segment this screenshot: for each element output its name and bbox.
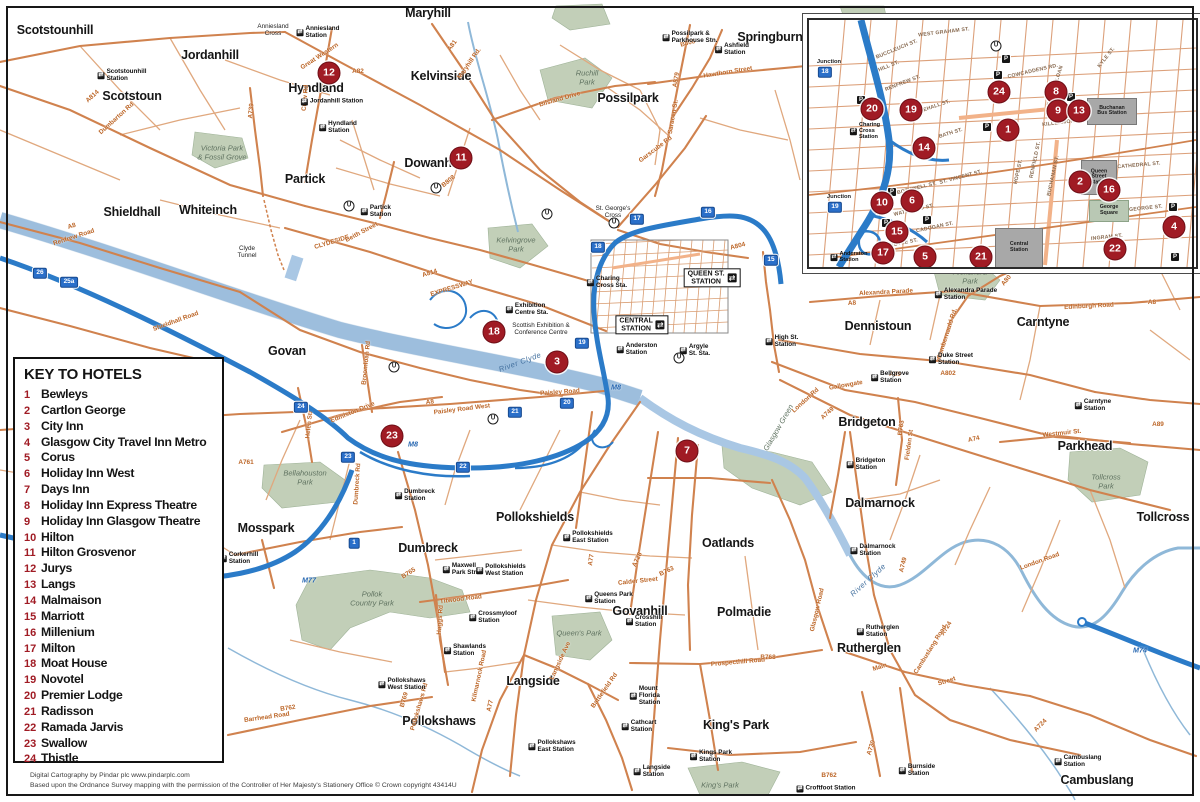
building-label: George Square — [1090, 205, 1128, 217]
underground-icon: U — [431, 183, 442, 194]
station-label: ⇄Exhibition Centre Sta. — [506, 303, 548, 317]
station-name: Bellgrove Station — [880, 371, 909, 385]
area-label: Hyndland — [288, 81, 343, 95]
hotel-marker: 4 — [1163, 216, 1186, 239]
legend-item: 2Cartlon George — [24, 403, 216, 419]
hotel-marker: 13 — [1068, 100, 1091, 123]
rail-icon: ⇄ — [319, 125, 326, 132]
legend-item: 16Millenium — [24, 625, 216, 641]
station-name: Crosshill Station — [635, 615, 662, 629]
underground-icon: U — [389, 362, 400, 373]
station-name: Carntyne Station — [1084, 399, 1111, 413]
hotel-name: Cartlon George — [41, 403, 126, 417]
parking-icon: P — [1169, 203, 1177, 211]
copyright-notice: Digital Cartography by Pindar plc www.pi… — [30, 771, 457, 791]
hotel-number: 10 — [24, 532, 41, 544]
rail-icon: ⇄ — [796, 786, 803, 793]
hotel-number: 3 — [24, 421, 41, 433]
hotel-name: Marriott — [41, 609, 84, 623]
station-name: Dalmarnock Station — [859, 544, 895, 558]
hotel-name: Langs — [41, 577, 75, 591]
hotel-number: 18 — [24, 658, 41, 670]
hotel-marker: 3 — [546, 351, 569, 374]
park-label: Pollok Country Park — [350, 590, 394, 607]
road-label: A8 — [67, 223, 77, 232]
poi-label: Anniesland Cross — [257, 24, 288, 38]
city-centre-inset-map: Buchanan Bus StationQueen Street Station… — [807, 18, 1198, 269]
junction-sign: 16 — [701, 207, 715, 218]
road-label: A8 — [426, 399, 435, 406]
road-label: A739 — [248, 103, 256, 119]
hotel-number: 14 — [24, 595, 41, 607]
inset-street-label: BATH ST. — [938, 128, 963, 140]
station-name: Anniesland Station — [306, 26, 340, 40]
hotel-number: 5 — [24, 452, 41, 464]
station-name: Pollokshields West Station — [485, 564, 526, 578]
road-label: Hawthorn Street — [703, 66, 753, 80]
road-label: A879 — [673, 72, 682, 88]
hotel-marker: 20 — [861, 98, 884, 121]
area-label: Maryhill — [405, 6, 451, 20]
rail-icon: ⇄ — [563, 535, 570, 542]
rail-icon: ⇄ — [857, 629, 864, 636]
hotel-marker: 24 — [988, 81, 1011, 104]
hotel-marker: 2 — [1069, 171, 1092, 194]
station-label: ⇄Queens Park Station — [585, 592, 633, 606]
inset-street-label: CATHEDRAL ST. — [1117, 162, 1161, 171]
hotel-marker: 12 — [318, 62, 341, 85]
station-label: ⇄Charing Cross Station — [850, 123, 880, 141]
legend-item: 23Swallow — [24, 736, 216, 752]
road-label: Glasgow Road — [810, 588, 826, 633]
hotel-name: City Inn — [41, 419, 83, 433]
road-label: Saracen St. — [668, 99, 680, 134]
hotel-marker: 19 — [900, 99, 923, 122]
station-box: CENTRAL STATION⇄ — [615, 315, 668, 334]
station-box-name: CENTRAL STATION — [619, 317, 652, 332]
road-label: Paisley Road West — [433, 403, 490, 416]
station-name: Scotstounhill Station — [107, 69, 147, 83]
rail-icon: ⇄ — [626, 619, 633, 626]
road-label: Bilsland Drive — [539, 91, 582, 109]
area-label: Whiteinch — [179, 203, 237, 217]
rail-icon: ⇄ — [617, 347, 624, 354]
area-label: Partick — [285, 172, 325, 186]
hotel-number: 7 — [24, 484, 41, 496]
river-label: River Clyde — [848, 562, 887, 599]
rail-icon: ⇄ — [476, 568, 483, 575]
rail-icon: ⇄ — [378, 682, 385, 689]
rail-icon: ⇄ — [469, 615, 476, 622]
legend-item: 5Corus — [24, 450, 216, 466]
legend-item: 20Premier Lodge — [24, 688, 216, 704]
hotel-name: Bewleys — [41, 387, 88, 401]
legend-item: 13Langs — [24, 577, 216, 593]
station-label: ⇄Pollokshields West Station — [476, 564, 526, 578]
station-name: Partick Station — [370, 205, 391, 219]
station-label: ⇄Dumbreck Station — [395, 489, 435, 503]
junction-sign: 15 — [764, 255, 778, 266]
station-label: ⇄Rutherglen Station — [857, 625, 899, 639]
junction-sign: 21 — [508, 407, 522, 418]
station-label: ⇄Ashfield Station — [715, 43, 749, 57]
inset-street-label: ST. VINCENT ST. — [939, 170, 983, 186]
area-label: Dalmarnock — [845, 496, 915, 510]
junction-sign: 20 — [560, 398, 574, 409]
station-box-name: QUEEN ST. STATION — [688, 270, 725, 285]
legend-item: 17Milton — [24, 641, 216, 657]
building-label: Buchanan Bus Station — [1088, 106, 1136, 118]
road-label: Helen St. — [305, 411, 314, 439]
junction-sign: 22 — [456, 462, 470, 473]
road-label: B808 — [441, 175, 457, 190]
road-label: A749 — [820, 407, 836, 422]
station-name: Argyle St. Sta. — [689, 344, 710, 358]
hotel-marker: 15 — [886, 221, 909, 244]
station-building: Central Station — [995, 228, 1043, 268]
road-label: A80 — [1001, 274, 1013, 287]
copyright-line-1: Digital Cartography by Pindar plc www.pi… — [30, 771, 457, 781]
hotel-name: Malmaison — [41, 593, 101, 607]
area-label: Shieldhall — [103, 205, 160, 219]
park-label: Glasgow Green — [762, 403, 796, 452]
inset-street-label: WEST GRAHAM ST. — [918, 27, 970, 38]
station-name: Burnside Station — [908, 764, 935, 778]
motorway-label: M77 — [302, 576, 316, 585]
inset-street-label: GEORGE ST. — [1129, 205, 1163, 214]
station-label: ⇄Anderston Station — [617, 343, 658, 357]
underground-icon: U — [674, 353, 685, 364]
junction-sign: 19 — [575, 338, 589, 349]
station-box: QUEEN ST. STATION⇄ — [684, 268, 741, 287]
rail-icon: ⇄ — [1075, 403, 1082, 410]
station-label: ⇄Maxwell Park Stn. — [443, 563, 479, 577]
hotel-number: 6 — [24, 468, 41, 480]
hotel-number: 9 — [24, 516, 41, 528]
station-name: High St. Station — [775, 335, 799, 349]
hotel-marker: 18 — [483, 321, 506, 344]
hotel-name: Days Inn — [41, 482, 89, 496]
legend-item: 11Hilton Grosvenor — [24, 545, 216, 561]
station-name: Dumbreck Station — [404, 489, 435, 503]
park-label: Queen's Park — [556, 630, 601, 639]
station-name: Charing Cross Sta. — [596, 276, 627, 290]
area-label: Bridgeton — [838, 415, 895, 429]
station-label: ⇄High St. Station — [766, 335, 799, 349]
rail-icon: ⇄ — [528, 744, 535, 751]
road-label: Titwood Road — [440, 594, 483, 605]
road-label: EXPRESSWAY — [430, 279, 474, 298]
park-label: Tollcross Park — [1091, 473, 1120, 490]
station-label: ⇄Charing Cross Sta. — [587, 276, 627, 290]
rail-icon: ⇄ — [847, 462, 854, 469]
rail-icon: ⇄ — [929, 357, 936, 364]
road-label: Langside Ave — [549, 641, 572, 681]
park-label: Kelvingrove Park — [496, 236, 535, 253]
station-name: Anderston Station — [626, 343, 658, 357]
station-name: Cambuslang Station — [1064, 755, 1102, 769]
park-label: Victoria Park & Fossil Grove — [197, 144, 246, 161]
rail-icon: ⇄ — [506, 307, 513, 314]
road-label: A74 — [968, 436, 981, 445]
hotel-number: 13 — [24, 579, 41, 591]
area-label: Oatlands — [702, 536, 754, 550]
road-label: A89 — [1152, 422, 1164, 428]
road-label: A8 — [848, 301, 856, 308]
legend-item: 12Jurys — [24, 561, 216, 577]
station-label: ⇄Dalmarnock Station — [850, 544, 895, 558]
road-label: Gallowgate — [829, 380, 864, 392]
hotel-number: 24 — [24, 753, 41, 765]
inset-street-label: RENFIELD ST. — [1030, 141, 1043, 179]
underground-icon: U — [991, 41, 1002, 52]
hotel-number: 8 — [24, 500, 41, 512]
hotel-marker: 14 — [913, 137, 936, 160]
junction-sign: 18 — [818, 67, 832, 78]
road-label: A814 — [422, 269, 438, 280]
road-label: A82 — [352, 69, 364, 75]
rail-icon: ⇄ — [690, 754, 697, 761]
rail-icon: ⇄ — [728, 274, 737, 283]
hotel-marker: 16 — [1098, 179, 1121, 202]
copyright-line-2: Based upon the Ordnance Survey mapping w… — [30, 781, 457, 791]
inset-street-label: RENFREW ST. — [885, 75, 922, 93]
inset-street-label: BUCHANAN ST. — [1047, 155, 1061, 196]
hotel-marker: 10 — [871, 192, 894, 215]
station-label: ⇄Croftfoot Station — [796, 786, 855, 793]
rail-icon: ⇄ — [871, 375, 878, 382]
building-label: Central Station — [996, 242, 1042, 254]
rail-icon: ⇄ — [1055, 759, 1062, 766]
station-label: ⇄Bellgrove Station — [871, 371, 909, 385]
inset-labels-layer: Buchanan Bus StationQueen Street Station… — [809, 20, 1196, 267]
road-label: A728 — [632, 552, 644, 569]
junction-caption: Junction — [827, 194, 851, 200]
junction-sign: 24 — [294, 402, 308, 413]
motorway-label: M8 — [408, 440, 418, 449]
station-label: ⇄Alexandra Parade Station — [935, 288, 997, 302]
station-label: ⇄Anderston Station — [831, 252, 868, 264]
hotel-name: Holiday Inn Express Theatre — [41, 498, 197, 512]
station-label: ⇄Jordanhill Station — [301, 99, 363, 106]
road-label: Broomloan Rd — [362, 341, 373, 385]
road-label: Edmiston Drive — [330, 401, 376, 425]
road-label: A802 — [940, 371, 955, 377]
junction-sign: 17 — [630, 214, 644, 225]
station-name: Queens Park Station — [594, 592, 633, 606]
road-label: A724 — [1033, 718, 1048, 733]
station-name: Pollokshaws West Station — [387, 678, 425, 692]
station-label: ⇄Langside Station — [634, 765, 671, 779]
road-label: B765 — [401, 567, 417, 581]
road-label: A730 — [867, 740, 878, 757]
legend-item: 18Moat House — [24, 656, 216, 672]
station-label: ⇄Partick Station — [361, 205, 391, 219]
station-name: Corkerhill Station — [229, 552, 258, 566]
station-label: ⇄Cambuslang Station — [1055, 755, 1102, 769]
road-label: Shieldhall Road — [152, 311, 199, 333]
junction-sign: 26 — [33, 268, 47, 279]
road-label: Street — [937, 676, 956, 688]
rail-icon: ⇄ — [850, 128, 857, 135]
station-label: ⇄Anniesland Station — [297, 26, 340, 40]
hotel-name: Novotel — [41, 672, 84, 686]
george-square-block: George Square — [1089, 200, 1129, 222]
area-label: Parkhead — [1058, 439, 1113, 453]
road-label: Main — [872, 663, 888, 674]
station-name: Kings Park Station — [699, 750, 732, 764]
hotel-number: 19 — [24, 674, 41, 686]
underground-icon: U — [542, 209, 553, 220]
road-label: Alexandra Parade — [859, 288, 913, 297]
hotel-name: Hilton Grosvenor — [41, 545, 136, 559]
road-label: Fielden St — [905, 429, 916, 460]
station-label: ⇄Crossmyloof Station — [469, 611, 517, 625]
inset-street-label: COWCADDENS RD. — [1007, 64, 1058, 81]
area-label: Possilpark — [597, 91, 658, 105]
glasgow-hotels-map: ScotstounhillJordanhillScotstounHyndland… — [0, 0, 1200, 802]
road-label: B763 — [898, 420, 906, 436]
rail-icon: ⇄ — [630, 692, 637, 699]
station-name: Possilpark & Parkhouse Stn. — [672, 31, 718, 45]
road-label: A804 — [730, 242, 746, 252]
hotel-name: Swallow — [41, 736, 87, 750]
legend-item: 24Thistle — [24, 751, 216, 767]
road-label: London Rd — [791, 387, 820, 414]
hotel-name: Milton — [41, 641, 75, 655]
road-label: London Road — [1020, 552, 1061, 572]
station-label: ⇄Pollokshaws East Station — [528, 740, 575, 754]
area-label: Mosspark — [238, 521, 295, 535]
legend-item: 8Holiday Inn Express Theatre — [24, 498, 216, 514]
rail-icon: ⇄ — [361, 209, 368, 216]
road-label: Dumbarton Rd — [98, 102, 135, 136]
station-name: Pollokshields East Station — [572, 531, 613, 545]
hotel-name: Millenium — [41, 625, 95, 639]
road-label: Calder Street — [618, 577, 658, 588]
park-label: Ruchill Park — [576, 69, 599, 86]
hotel-number: 23 — [24, 738, 41, 750]
rail-icon: ⇄ — [715, 47, 722, 54]
road-label: B762 — [821, 773, 836, 779]
river-label: River Clyde — [497, 350, 542, 374]
rail-icon: ⇄ — [622, 724, 629, 731]
rail-icon: ⇄ — [443, 567, 450, 574]
station-name: Anderston Station — [840, 252, 868, 264]
legend-item: 9Holiday Inn Glasgow Theatre — [24, 514, 216, 530]
motorway-label: M8 — [611, 383, 621, 392]
station-label: ⇄Possilpark & Parkhouse Stn. — [663, 31, 718, 45]
rail-icon: ⇄ — [663, 35, 670, 42]
hotel-marker: 21 — [970, 246, 993, 269]
station-label: ⇄Crosshill Station — [626, 615, 662, 629]
hotel-name: Glasgow City Travel Inn Metro — [41, 435, 206, 449]
station-name: Ashfield Station — [724, 43, 749, 57]
station-building: Buchanan Bus Station — [1087, 98, 1137, 125]
hotel-marker: 9 — [1047, 100, 1070, 123]
legend-item-list: 1Bewleys2Cartlon George3City Inn4Glasgow… — [15, 386, 222, 767]
hotel-name: Jurys — [41, 561, 72, 575]
park-label: Alexandra Park — [953, 268, 987, 285]
poi-label: Clyde Tunnel — [237, 246, 256, 260]
poi-label: Scottish Exhibition & Conference Centre — [512, 323, 569, 337]
station-label: ⇄Hyndland Station — [319, 121, 357, 135]
station-name: Cathcart Station — [631, 720, 657, 734]
area-label: Dennistoun — [845, 319, 912, 333]
rail-icon: ⇄ — [899, 768, 906, 775]
hotel-name: Premier Lodge — [41, 688, 122, 702]
area-label: Pollokshields — [496, 510, 574, 524]
station-label: ⇄Kings Park Station — [690, 750, 732, 764]
hotel-number: 22 — [24, 722, 41, 734]
rail-icon: ⇄ — [587, 280, 594, 287]
station-name: Alexandra Parade Station — [944, 288, 997, 302]
station-label: ⇄Mount Florida Station — [630, 686, 660, 706]
junction-sign: 19 — [828, 202, 842, 213]
station-label: ⇄Argyle St. Sta. — [680, 344, 710, 358]
junction-sign: 25a — [60, 277, 78, 288]
station-label: ⇄Corkerhill Station — [220, 552, 258, 566]
hotel-name: Hilton — [41, 530, 74, 544]
hotel-marker: 23 — [381, 425, 404, 448]
station-name: Charing Cross Station — [859, 123, 880, 141]
legend-item: 19Novotel — [24, 672, 216, 688]
station-name: Pollokshaws East Station — [537, 740, 575, 754]
area-label: Polmadie — [717, 605, 771, 619]
legend-item: 4Glasgow City Travel Inn Metro — [24, 435, 216, 451]
hotel-marker: 22 — [1104, 238, 1127, 261]
station-name: Crossmyloof Station — [478, 611, 517, 625]
legend-item: 10Hilton — [24, 530, 216, 546]
hotel-number: 4 — [24, 437, 41, 449]
hotel-marker: 1 — [997, 119, 1020, 142]
hotel-name: Ramada Jarvis — [41, 720, 123, 734]
hotel-number: 20 — [24, 690, 41, 702]
motorway-label: M74 — [1133, 646, 1147, 655]
hotel-number: 2 — [24, 405, 41, 417]
road-label: B769 — [400, 692, 410, 708]
legend-item: 14Malmaison — [24, 593, 216, 609]
area-label: Dumbreck — [398, 541, 458, 555]
legend-item: 7Days Inn — [24, 482, 216, 498]
station-name: Croftfoot Station — [806, 786, 856, 793]
road-label: Paisley Road — [540, 388, 580, 397]
road-label: Beith Street — [345, 222, 380, 244]
hotel-number: 11 — [24, 547, 41, 559]
parking-icon: P — [1171, 253, 1179, 261]
road-label: A761 — [238, 460, 253, 466]
rail-icon: ⇄ — [831, 255, 838, 262]
rail-icon: ⇄ — [395, 493, 402, 500]
station-name: Langside Station — [643, 765, 671, 779]
hotel-marker: 5 — [914, 246, 937, 269]
legend-item: 21Radisson — [24, 704, 216, 720]
legend-item: 6Holiday Inn West — [24, 466, 216, 482]
road-label: Haggs Rd — [437, 605, 445, 635]
hotel-number: 16 — [24, 627, 41, 639]
inset-street-label: BUCCLEUCH ST. — [875, 39, 918, 60]
station-name: Exhibition Centre Sta. — [515, 303, 548, 317]
rail-icon: ⇄ — [656, 321, 665, 330]
legend-item: 22Ramada Jarvis — [24, 720, 216, 736]
road-label: Garscube Rd — [638, 135, 674, 164]
station-name: Shawlands Station — [453, 644, 486, 658]
station-name: Bridgeton Station — [856, 458, 886, 472]
hotel-marker: 6 — [901, 190, 924, 213]
hotel-number: 15 — [24, 611, 41, 623]
area-label: Cambuslang — [1060, 773, 1133, 787]
hotel-marker: 7 — [676, 440, 699, 463]
